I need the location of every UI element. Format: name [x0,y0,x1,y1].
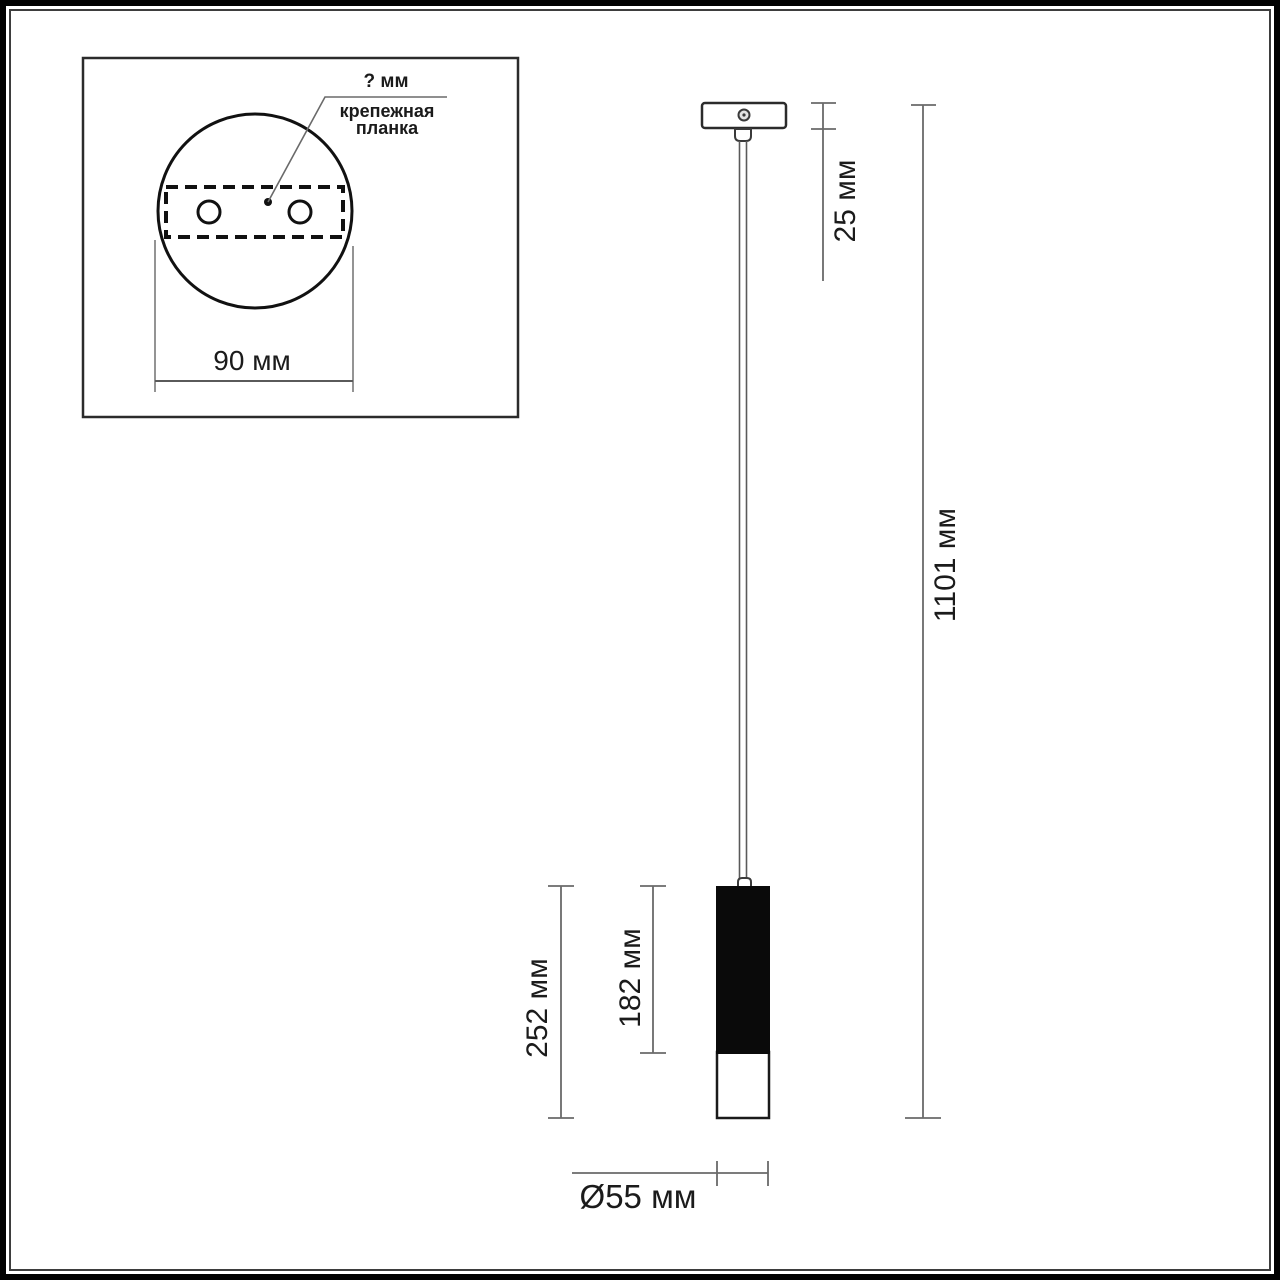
inner-page-border [9,9,1271,1271]
